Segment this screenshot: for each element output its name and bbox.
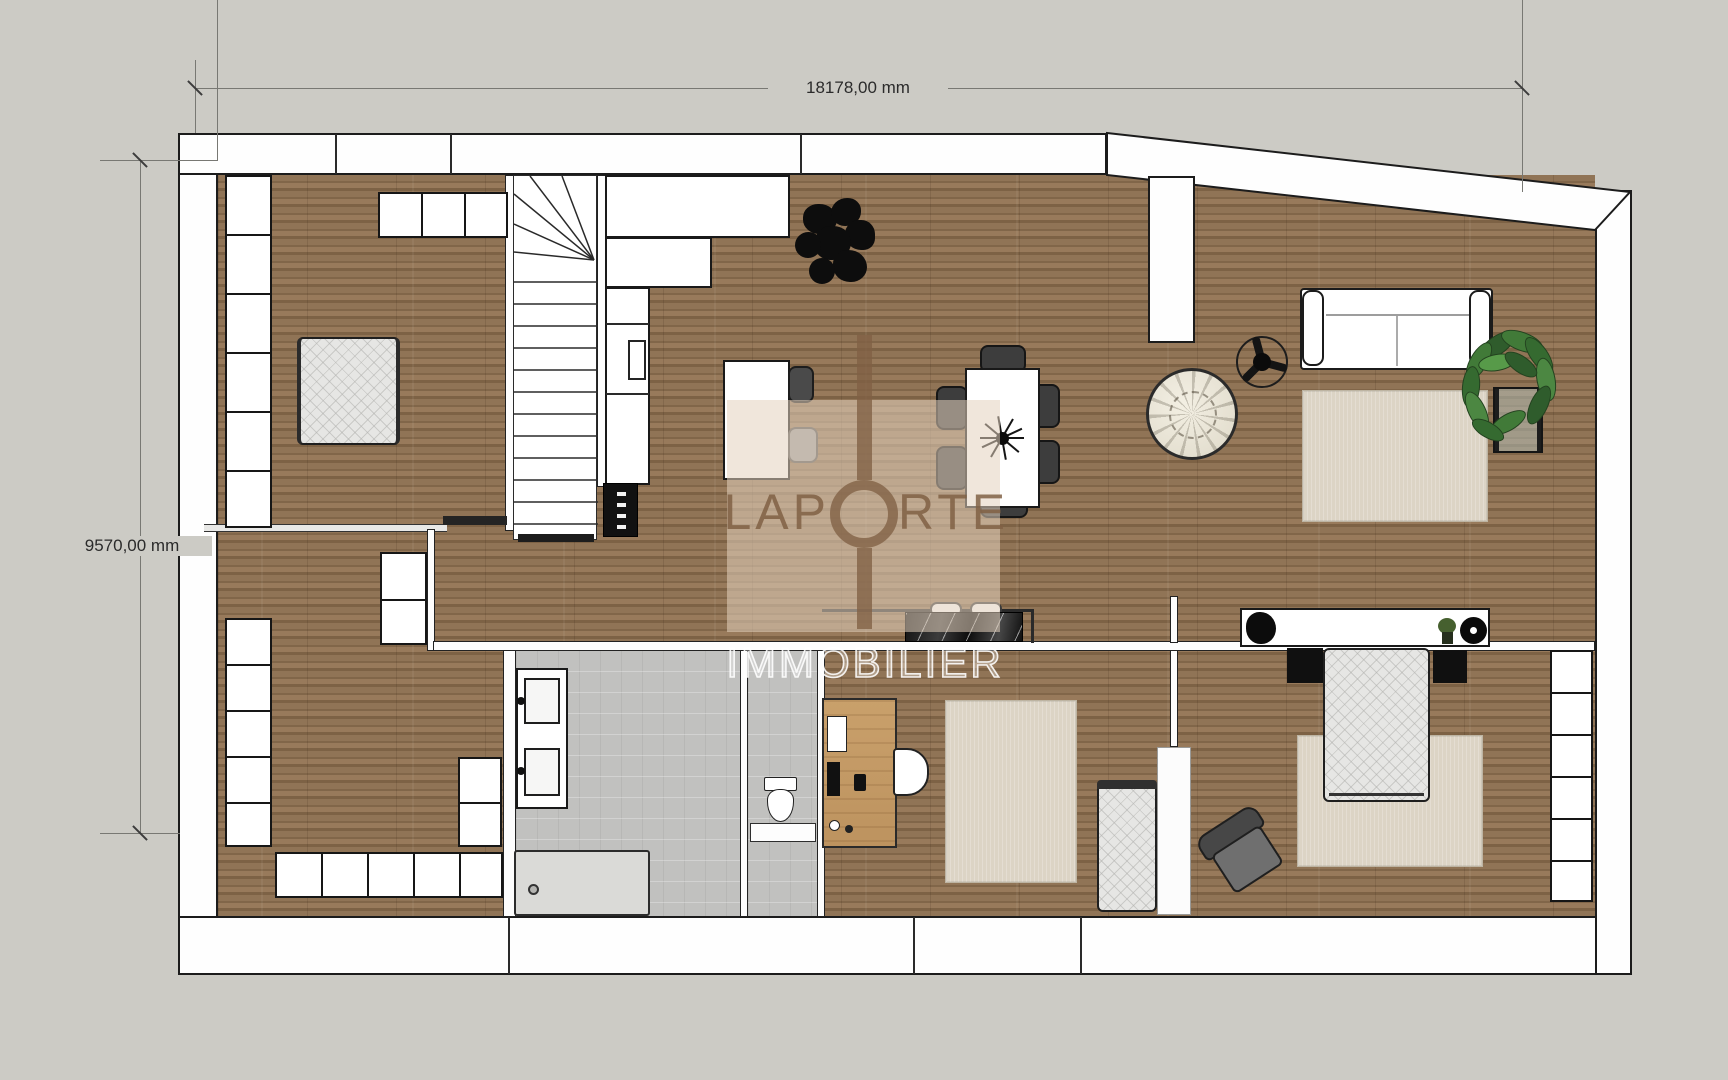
ceiling-fan-icon [1236, 336, 1288, 388]
faucet-icon [517, 767, 525, 775]
nightstand [1433, 650, 1467, 683]
niche-line-vertical [1031, 609, 1034, 643]
wc-shelf [750, 823, 816, 842]
wall-joint [450, 134, 452, 174]
wall-joint [913, 917, 915, 974]
staircase [513, 175, 597, 540]
rug-office [945, 700, 1077, 883]
watermark-brand-left: LAP [640, 487, 830, 537]
keyhole-logo-icon [830, 480, 898, 548]
stove-black [603, 483, 638, 537]
wc-wall-left [740, 650, 748, 917]
helmet-decor [1246, 612, 1276, 644]
counter-divider [606, 323, 649, 325]
wardrobe-left-column [225, 175, 272, 528]
nightstand [1287, 648, 1323, 683]
wall-joint [1080, 917, 1082, 974]
small-plant-decor [1438, 618, 1458, 645]
sink [524, 748, 560, 796]
dimension-width-label: 18178,00 mm [768, 78, 948, 98]
vinyl-disc-decor [1460, 617, 1487, 644]
faucet-icon [517, 697, 525, 705]
cabinet-2cell [380, 552, 427, 645]
watermark-brand-right: RTE [898, 487, 1088, 537]
wardrobe-column-3 [1550, 650, 1593, 902]
sideboard-wall-stub [1170, 596, 1178, 643]
potted-plant-icon [1448, 330, 1568, 460]
sink [524, 678, 560, 724]
kitchen-counter [605, 175, 790, 238]
cabinet-2cell [458, 757, 502, 847]
door-lintel [443, 516, 507, 525]
wardrobe-row [275, 852, 503, 898]
shelf-unit [378, 192, 508, 238]
island-stool [788, 366, 814, 403]
keyhole-logo-icon [857, 548, 872, 629]
hallway-wall-vertical [427, 529, 435, 651]
stair-base-strip [518, 534, 594, 542]
drain-icon [528, 884, 539, 895]
toilet [764, 777, 797, 823]
desk [822, 698, 897, 848]
keyhole-logo-icon [857, 335, 872, 480]
wall-column [1148, 176, 1195, 343]
wardrobe-column-2 [225, 618, 272, 847]
ottoman-pouf [1146, 368, 1238, 460]
floor-plan-page: { "annotations": { "width_dimension": "1… [0, 0, 1728, 1080]
watermark-subtitle: IMMOBILIER [700, 641, 1030, 685]
dimension-extension [1522, 0, 1523, 192]
bed-double-1 [297, 337, 400, 445]
dimension-height-label: 9570,00 mm [52, 536, 212, 556]
bathtub [514, 850, 650, 916]
bedroom3-door [1157, 747, 1191, 915]
bed-double-3 [1323, 648, 1430, 802]
wall-joint [800, 134, 802, 174]
dimension-extension [217, 0, 218, 160]
dimension-line-height [140, 160, 141, 833]
counter-divider [606, 393, 649, 395]
plant-silhouette-icon [795, 198, 875, 290]
oven-door [628, 340, 646, 380]
wall-joint [335, 134, 337, 174]
single-bed [1097, 780, 1157, 912]
dimension-extension [100, 160, 218, 161]
bedroom3-wall [1170, 650, 1178, 747]
wall-joint [508, 917, 510, 974]
kitchen-counter-run [605, 287, 650, 485]
kitchen-counter-return [605, 237, 712, 288]
dimension-extension [195, 60, 196, 133]
